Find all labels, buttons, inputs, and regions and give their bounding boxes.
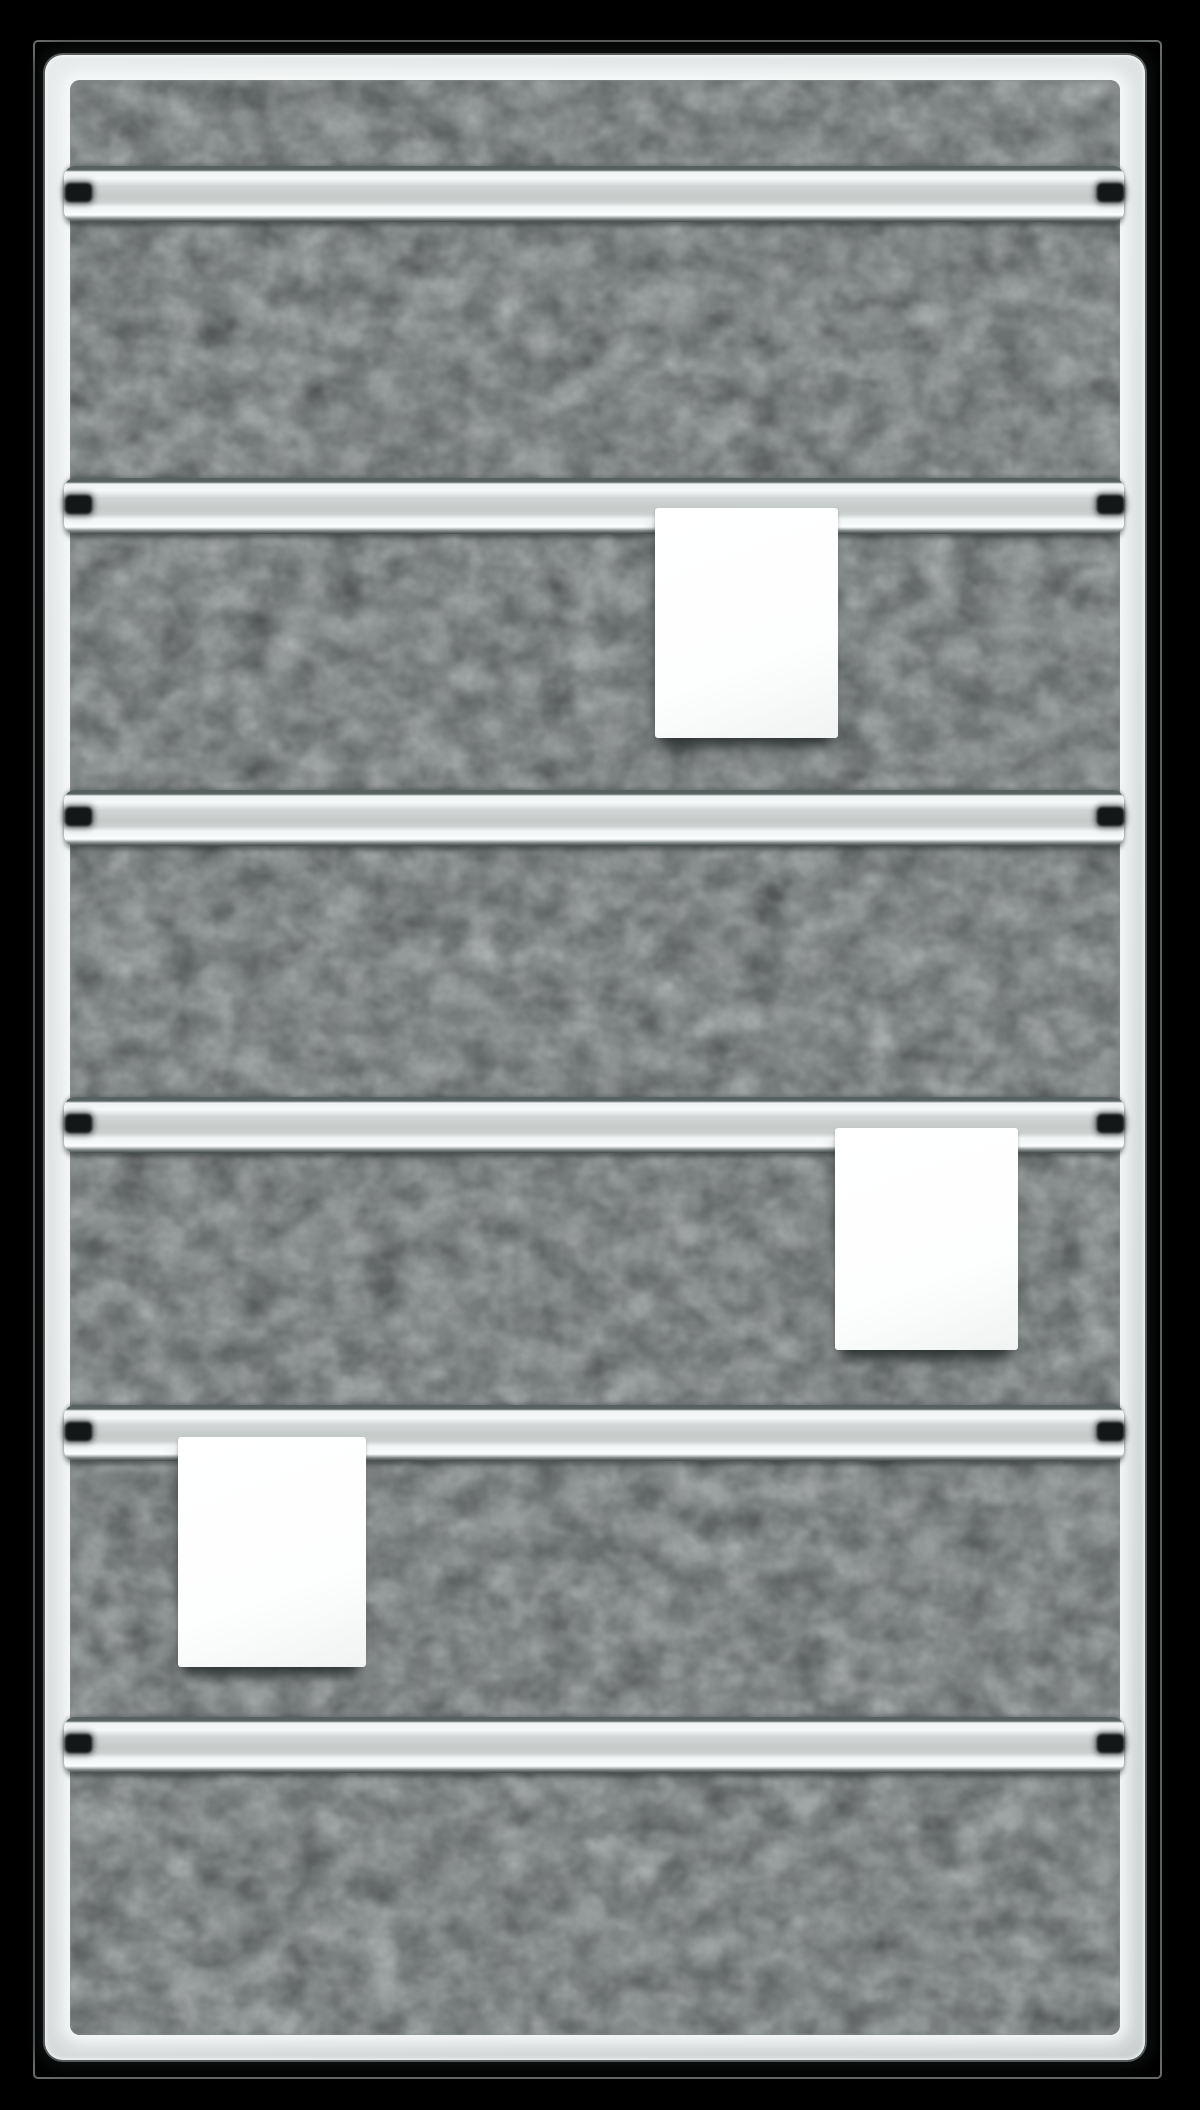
- rail-2-end-clip-right: [1097, 495, 1124, 514]
- card-rail-1: [64, 166, 1124, 222]
- card-rail-2: [64, 478, 1124, 534]
- rail-4-end-clip-left: [65, 1114, 92, 1133]
- white-card-2: [835, 1128, 1018, 1350]
- card-rail-6: [64, 1717, 1124, 1773]
- rail-5-end-clip-left: [65, 1422, 92, 1441]
- photo-stage: [0, 0, 1200, 2110]
- rail-3-end-clip-left: [65, 807, 92, 826]
- rail-1-end-clip-left: [65, 183, 92, 202]
- rail-1-end-clip-right: [1097, 183, 1124, 202]
- rail-3-end-clip-right: [1097, 807, 1124, 826]
- white-card-3: [178, 1437, 366, 1667]
- rail-5-end-clip-right: [1097, 1422, 1124, 1441]
- rail-6-end-clip-right: [1097, 1734, 1124, 1753]
- board-surface: [70, 80, 1120, 2035]
- board-frame: [45, 55, 1145, 2060]
- card-rail-3: [64, 790, 1124, 846]
- rail-4-end-clip-right: [1097, 1114, 1124, 1133]
- white-card-1: [655, 508, 838, 738]
- rail-6-end-clip-left: [65, 1734, 92, 1753]
- rail-2-end-clip-left: [65, 495, 92, 514]
